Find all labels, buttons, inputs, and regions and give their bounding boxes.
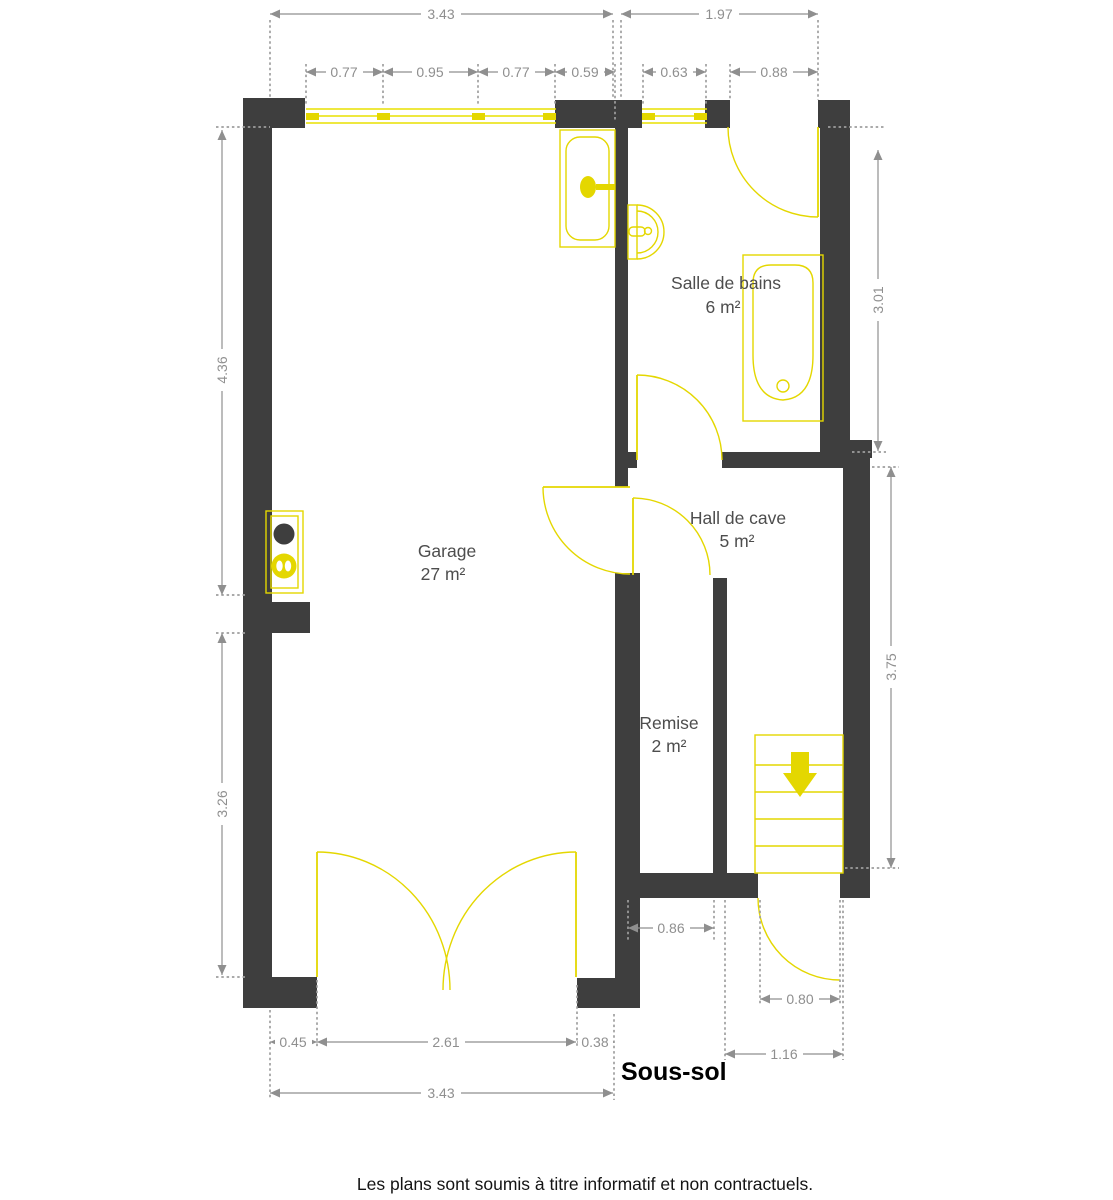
dim-bottom-total: 3.43 bbox=[270, 1085, 613, 1101]
garage-window bbox=[306, 109, 556, 123]
dim-top-right-total: 1.97 bbox=[621, 6, 818, 22]
dim-window-c: 0.77 bbox=[478, 64, 555, 80]
svg-text:3.43: 3.43 bbox=[427, 1085, 454, 1101]
window-mullion bbox=[377, 113, 390, 120]
svg-text:0.38: 0.38 bbox=[581, 1034, 608, 1050]
bathroom-hall-door bbox=[637, 375, 722, 460]
boiler-flame-icon bbox=[272, 554, 297, 579]
dim-exit-door: 0.80 bbox=[760, 991, 840, 1007]
wall-top-pier-center bbox=[555, 100, 642, 128]
dim-window-b: 0.95 bbox=[383, 64, 478, 80]
window-mullion bbox=[642, 113, 655, 120]
walls bbox=[243, 98, 872, 1008]
window-mullion bbox=[543, 113, 556, 120]
wall-bottom-left bbox=[243, 977, 317, 1008]
wall-right-hall bbox=[843, 458, 870, 898]
dim-right-upper: 3.01 bbox=[870, 150, 886, 451]
dim-bathroom-window: 0.63 bbox=[643, 64, 706, 80]
window-mullion bbox=[472, 113, 485, 120]
svg-text:0.86: 0.86 bbox=[657, 920, 684, 936]
washbasin bbox=[628, 205, 664, 259]
room-area-garage: 27 m² bbox=[421, 564, 466, 584]
dim-bottom-a: 0.45 bbox=[270, 1034, 317, 1050]
wall-divider-upper bbox=[615, 125, 628, 487]
dim-right-lower: 3.75 bbox=[883, 467, 899, 868]
dim-left-upper: 4.36 bbox=[214, 130, 230, 595]
boiler-flue-icon bbox=[274, 524, 295, 545]
svg-text:3.26: 3.26 bbox=[214, 790, 230, 817]
wall-bottom-garage-right bbox=[577, 978, 616, 1008]
dim-bottom-c: 0.38 bbox=[577, 1034, 614, 1050]
plan-title: Sous-sol bbox=[621, 1058, 727, 1086]
wall-right-bathroom bbox=[820, 100, 850, 458]
dim-pier: 0.59 bbox=[555, 64, 615, 80]
svg-text:2.61: 2.61 bbox=[432, 1034, 459, 1050]
dim-left-lower: 3.26 bbox=[214, 633, 230, 975]
wall-hall-bottom bbox=[627, 873, 758, 898]
wall-storage-right bbox=[713, 578, 727, 873]
bathroom-entry-door bbox=[728, 127, 818, 217]
disclaimer: Les plans sont soumis à titre informatif… bbox=[357, 1174, 813, 1194]
svg-text:0.45: 0.45 bbox=[279, 1034, 306, 1050]
floorplan-page: 3.43 1.97 0.77 0.95 0.77 0.59 bbox=[0, 0, 1113, 1200]
window-mullion bbox=[306, 113, 319, 120]
wall-hall-top-a bbox=[615, 452, 637, 468]
dim-storage-width: 0.86 bbox=[628, 920, 714, 936]
dim-bottom-b: 2.61 bbox=[317, 1034, 576, 1050]
dim-bathroom-door: 0.88 bbox=[730, 64, 818, 80]
room-area-storage: 2 m² bbox=[652, 736, 687, 756]
dim-window-a: 0.77 bbox=[306, 64, 383, 80]
room-area-hall: 5 m² bbox=[720, 531, 755, 551]
svg-text:3.43: 3.43 bbox=[427, 6, 454, 22]
extension-lines bbox=[216, 20, 899, 1100]
stairs-down-arrow-icon bbox=[783, 752, 817, 797]
laundry-sink bbox=[560, 130, 615, 247]
faucet-icon bbox=[580, 176, 596, 198]
svg-text:1.16: 1.16 bbox=[770, 1046, 797, 1062]
wall-top-pier-right bbox=[705, 100, 730, 128]
svg-text:0.77: 0.77 bbox=[330, 64, 357, 80]
svg-text:3.01: 3.01 bbox=[870, 286, 886, 313]
svg-text:0.63: 0.63 bbox=[660, 64, 687, 80]
wall-left bbox=[243, 98, 272, 1008]
stairs bbox=[755, 735, 843, 873]
garage-hall-door-left-swing bbox=[543, 487, 630, 574]
dim-top-left-total: 3.43 bbox=[270, 6, 613, 22]
floorplan-drawing: 3.43 1.97 0.77 0.95 0.77 0.59 bbox=[0, 0, 1113, 1200]
exit-door-under-stairs bbox=[758, 898, 840, 980]
svg-text:0.59: 0.59 bbox=[571, 64, 598, 80]
svg-text:0.77: 0.77 bbox=[502, 64, 529, 80]
room-area-bathroom: 6 m² bbox=[706, 297, 741, 317]
svg-text:1.97: 1.97 bbox=[705, 6, 732, 22]
wall-hall-top-b bbox=[722, 452, 852, 468]
window-mullion bbox=[694, 113, 707, 120]
wall-top-left-corner bbox=[243, 98, 305, 128]
drain-icon bbox=[777, 380, 789, 392]
svg-text:0.88: 0.88 bbox=[760, 64, 787, 80]
svg-text:0.95: 0.95 bbox=[416, 64, 443, 80]
svg-text:4.36: 4.36 bbox=[214, 356, 230, 383]
wall-left-pier bbox=[243, 602, 310, 633]
room-labels: Garage 27 m² Salle de bains 6 m² Hall de… bbox=[418, 273, 786, 756]
bathroom-window bbox=[642, 109, 707, 123]
room-label-storage: Remise bbox=[639, 713, 698, 733]
wall-hall-bottom-corner bbox=[840, 873, 870, 898]
garage-double-door bbox=[317, 852, 576, 990]
svg-text:3.75: 3.75 bbox=[883, 653, 899, 680]
room-label-garage: Garage bbox=[418, 541, 476, 561]
room-label-hall: Hall de cave bbox=[690, 508, 786, 528]
room-label-bathroom: Salle de bains bbox=[671, 273, 781, 293]
dim-exit-total: 1.16 bbox=[725, 1046, 843, 1062]
wall-divider-lower bbox=[615, 573, 640, 1008]
svg-text:0.80: 0.80 bbox=[786, 991, 813, 1007]
boiler bbox=[266, 511, 303, 593]
